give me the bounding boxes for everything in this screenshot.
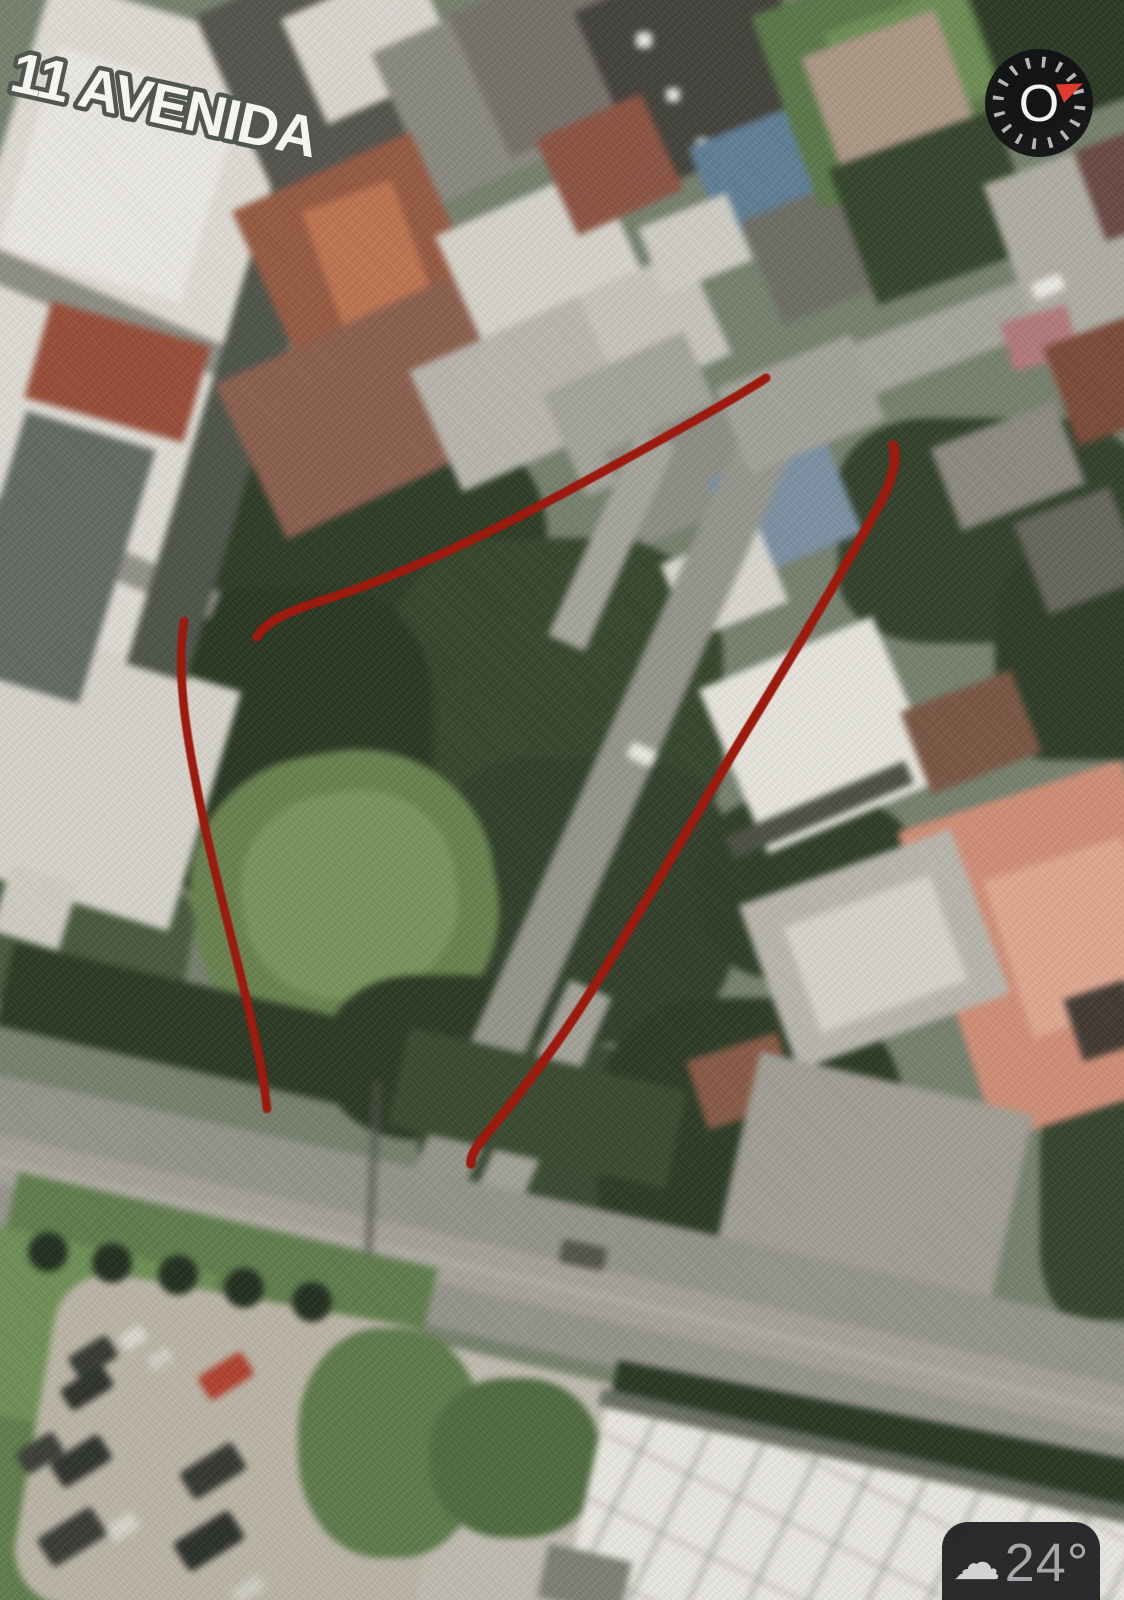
- street-label: 11 AVENIDA: [0, 0, 520, 220]
- cloud-icon: ☁: [953, 1535, 1001, 1591]
- weather-widget[interactable]: ☁ 24°: [942, 1522, 1100, 1600]
- temperature-value: 24°: [1005, 1535, 1090, 1591]
- compass-letter: O: [1019, 75, 1059, 133]
- map-screenshot: 11 AVENIDA O ☁ 24°: [0, 0, 1124, 1600]
- street-label-text: 11 AVENIDA: [5, 40, 323, 170]
- annotation-stroke-left: [181, 621, 267, 1109]
- annotation-stroke-right: [471, 445, 895, 1164]
- compass-widget[interactable]: O: [984, 48, 1094, 158]
- drawn-annotations: [0, 0, 1124, 1600]
- annotation-stroke-upper: [257, 378, 766, 637]
